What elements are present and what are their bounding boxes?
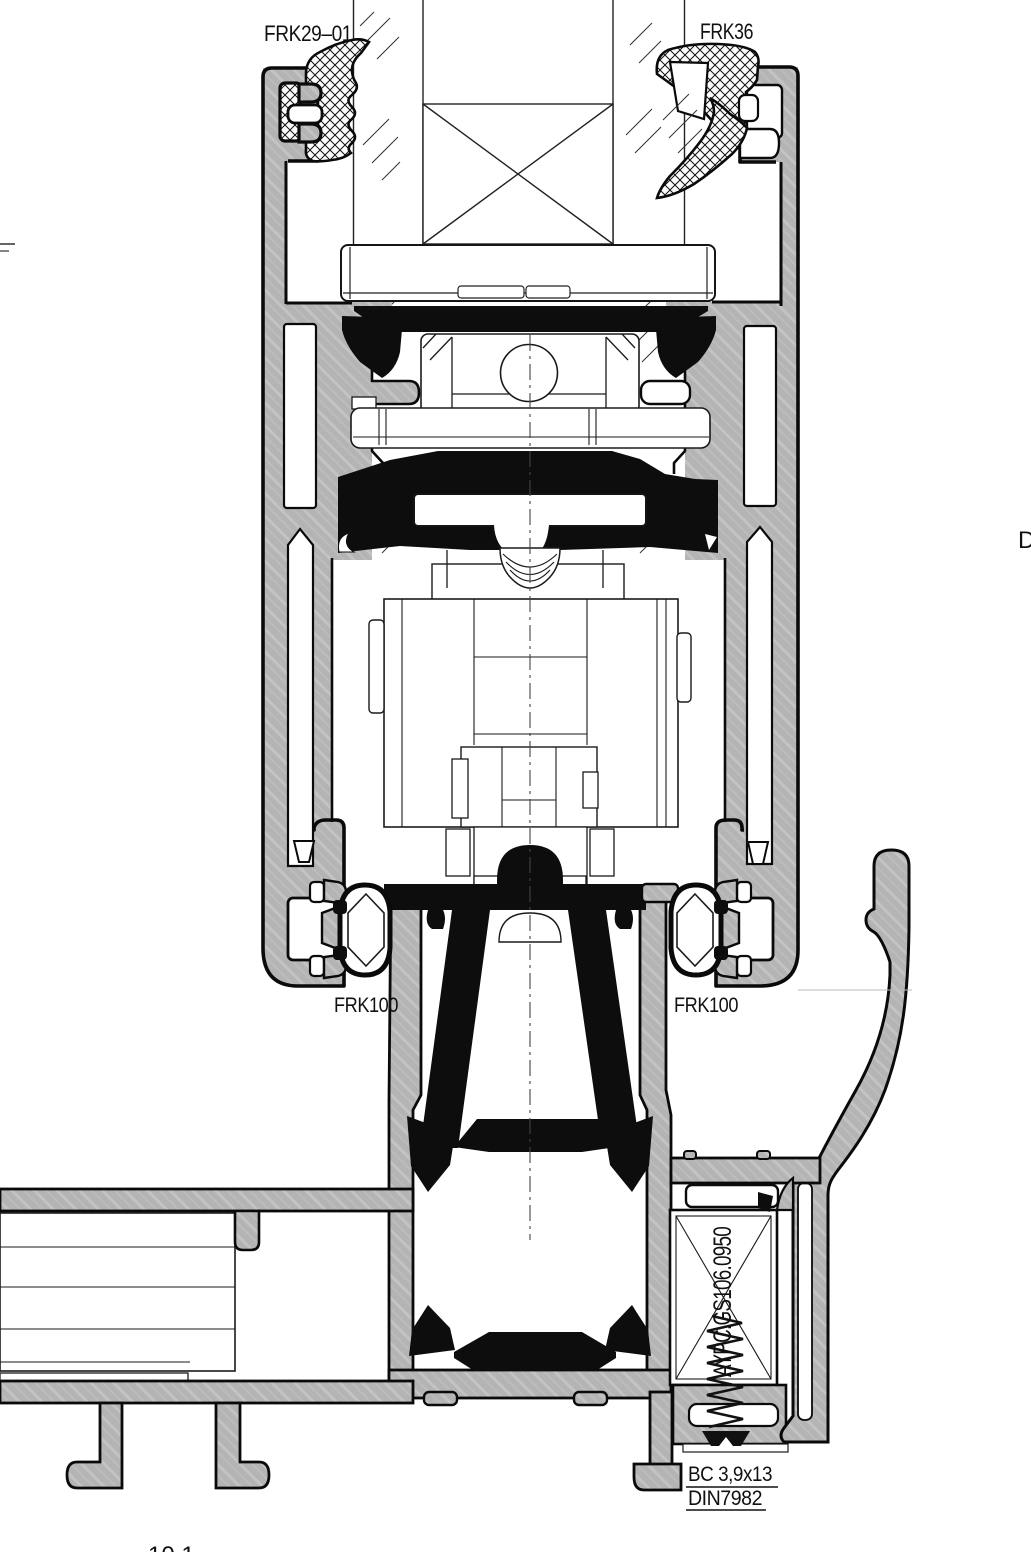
svg-text:BC 3,9x13: BC 3,9x13 bbox=[688, 1463, 772, 1486]
svg-text:FRK100: FRK100 bbox=[334, 994, 398, 1017]
svg-text:FRK100: FRK100 bbox=[674, 994, 738, 1017]
svg-text:10.1: 10.1 bbox=[148, 1542, 195, 1552]
svg-text:FRK36: FRK36 bbox=[700, 19, 753, 44]
svg-text:DIN7982: DIN7982 bbox=[688, 1487, 762, 1510]
svg-text:D: D bbox=[1018, 527, 1031, 554]
svg-text:FRK29–01: FRK29–01 bbox=[264, 21, 352, 46]
svg-text:AYPC.GS106.0950: AYPC.GS106.0950 bbox=[709, 1227, 737, 1377]
